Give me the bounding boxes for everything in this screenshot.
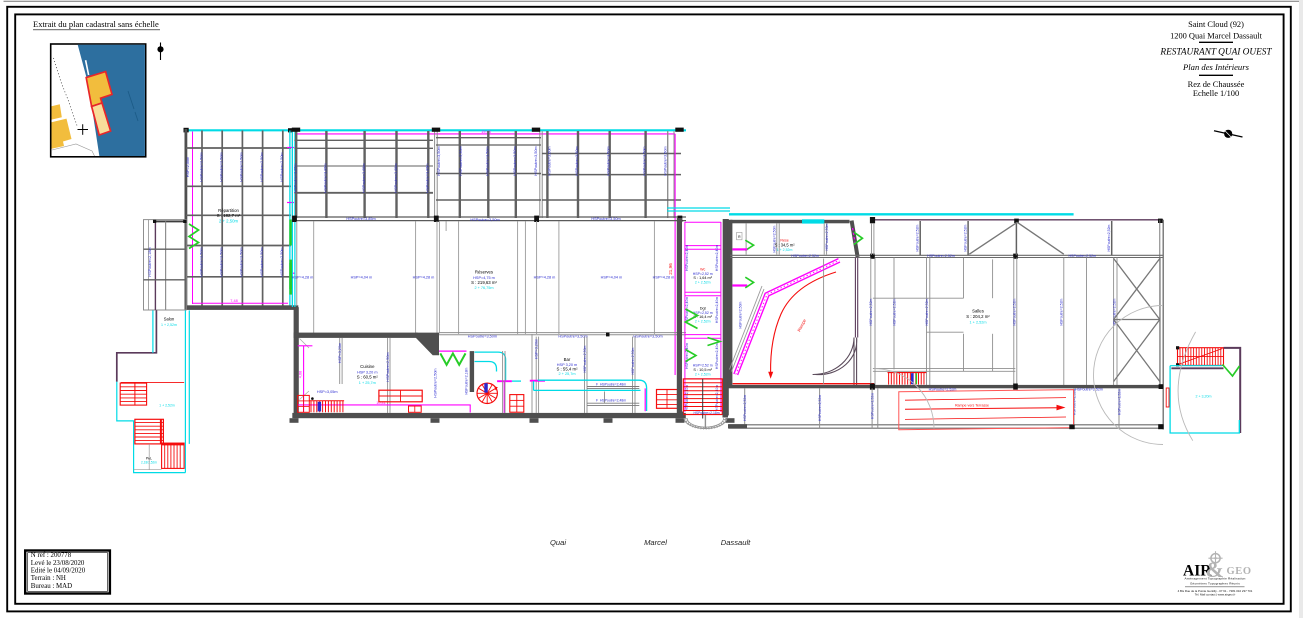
svg-text:HSPoutre=2,50m: HSPoutre=2,50m [386, 352, 390, 381]
svg-text:HSPoutre=2,52m: HSPoutre=2,52m [1107, 224, 1111, 251]
svg-text:HSPoutre=2,40m: HSPoutre=2,40m [685, 245, 689, 271]
svg-text:Aménagement Topographie Réalis: Aménagement Topographie Réalisation [1184, 577, 1245, 581]
svg-text:HSPoutre=2,40m: HSPoutre=2,40m [715, 245, 719, 271]
svg-text:Rampe vers Terrasse: Rampe vers Terrasse [955, 404, 989, 408]
svg-text:Bar: Bar [564, 357, 571, 362]
svg-text:HSPoutre=3,50m: HSPoutre=3,50m [437, 146, 441, 175]
svg-text:HSP=4,04 m: HSP=4,04 m [351, 276, 373, 280]
svg-text:HSPoutre=2,18m: HSPoutre=2,18m [148, 247, 152, 276]
svg-text:HSPoutre=2,52m: HSPoutre=2,52m [1075, 388, 1103, 392]
svg-text:Tel. Mail contact | www.airgeo: Tel. Mail contact | www.airgeo.fr [1195, 593, 1236, 597]
svg-text:Levé le 23/08/2020: Levé le 23/08/2020 [31, 560, 85, 567]
svg-text:HSPoutre=2,52m: HSPoutre=2,52m [925, 298, 929, 325]
svg-text:Dgt: Dgt [700, 306, 707, 310]
svg-text:HSPoutre=3,50m: HSPoutre=3,50m [575, 146, 579, 175]
svg-text:HSP=4,28 m: HSP=4,28 m [653, 276, 675, 280]
svg-text:Géomètres Topographes Réunis: Géomètres Topographes Réunis [1190, 581, 1240, 585]
svg-text:HSPoutre=2,50m: HSPoutre=2,50m [825, 223, 829, 250]
svg-text:HSPoutre=3,50m: HSPoutre=3,50m [607, 146, 611, 175]
svg-text:GEO: GEO [1227, 566, 1252, 577]
svg-text:HSPoutre=3,50m: HSPoutre=3,50m [513, 146, 517, 175]
svg-text:HSPoutre=2,52m: HSPoutre=2,52m [871, 393, 875, 419]
svg-text:HSPoutre=2,50m: HSPoutre=2,50m [220, 247, 224, 276]
svg-text:HSPoutre=2,50m: HSPoutre=2,50m [199, 152, 203, 181]
svg-text:Wc: Wc [700, 267, 705, 271]
svg-text:HSP=4,28 m: HSP=4,28 m [292, 276, 314, 280]
svg-text:Edité le 04/09/2020: Edité le 04/09/2020 [31, 568, 86, 575]
svg-text:HSPoutre=2,50m: HSPoutre=2,50m [220, 152, 224, 181]
svg-text:4,68: 4,68 [298, 371, 302, 378]
svg-text:HSP=3,05m: HSP=3,05m [317, 390, 338, 394]
svg-text:HSPoutre=3,85m: HSPoutre=3,85m [324, 163, 328, 192]
svg-text:HSPoutre=3,85m: HSPoutre=3,85m [362, 163, 366, 192]
svg-text:HSP=3,20m: HSP=3,20m [338, 343, 342, 364]
svg-text:Plan des Intérieurs: Plan des Intérieurs [1182, 62, 1250, 72]
svg-text:HSPoutre=3,50m: HSPoutre=3,50m [664, 146, 668, 175]
svg-text:HSPoutre=3,85m: HSPoutre=3,85m [294, 163, 298, 192]
svg-text:Dassault: Dassault [721, 538, 751, 547]
svg-text:HSPoutre=2,50m: HSPoutre=2,50m [199, 247, 203, 276]
svg-text:HSP=2,52 m: HSP=2,52 m [693, 272, 713, 276]
svg-text:HSPoutre=2,50m: HSPoutre=2,50m [434, 368, 438, 397]
svg-text:Echelle 1/100: Echelle 1/100 [1193, 89, 1239, 98]
svg-text:Extrait du plan cadastral sans: Extrait du plan cadastral sans échelle [33, 19, 159, 29]
svg-text:HSP=3,20m: HSP=3,20m [535, 339, 539, 360]
svg-text:2 + 76,75m: 2 + 76,75m [474, 286, 493, 290]
svg-text:HSPoutre=2,52m: HSPoutre=2,52m [1012, 298, 1016, 325]
svg-text:HSP=2,52 m: HSP=2,52 m [693, 364, 713, 368]
svg-text:HSPoutre=2,50m: HSPoutre=2,50m [280, 152, 284, 181]
svg-text:HSP=4,28 m: HSP=4,28 m [534, 276, 556, 280]
svg-text:HSPoutre=3,50m: HSPoutre=3,50m [591, 217, 620, 221]
svg-text:2 + 2,50m: 2 + 2,50m [219, 218, 239, 223]
svg-text:F HSPoutre=2,48m: F HSPoutre=2,48m [596, 382, 626, 386]
svg-text:N ref : 200778: N ref : 200778 [31, 552, 72, 559]
svg-text:S : 34,5 m²: S : 34,5 m² [775, 243, 796, 248]
svg-text:HSPoutre=2,50m: HSPoutre=2,50m [260, 247, 264, 276]
svg-text:HSPoutre=2,52m: HSPoutre=2,52m [743, 395, 747, 421]
svg-text:HSPoutre=3,50m: HSPoutre=3,50m [485, 146, 489, 175]
svg-text:S : 204,2 m²: S : 204,2 m² [966, 314, 990, 319]
svg-text:HSP=2,50m: HSP=2,50m [186, 157, 190, 178]
svg-text:HSPoutre=3,50m: HSPoutre=3,50m [548, 146, 552, 175]
svg-text:HSPoutre=2,50m: HSPoutre=2,50m [583, 345, 587, 372]
svg-text:1 + 2,52m: 1 + 2,52m [161, 323, 177, 327]
svg-text:HSPoutre=3,85m: HSPoutre=3,85m [394, 163, 398, 192]
svg-text:Marcel: Marcel [644, 538, 667, 547]
svg-text:HSPoutre=2,52m: HSPoutre=2,52m [791, 254, 819, 258]
svg-text:1 + 2,52m: 1 + 2,52m [159, 404, 175, 408]
svg-text:S : 219,63 m²: S : 219,63 m² [471, 280, 497, 285]
svg-text:HSPoutre=2,52m: HSPoutre=2,52m [916, 224, 920, 251]
svg-text:1 + 25,7m: 1 + 25,7m [359, 381, 376, 385]
svg-text:HSPoutre=2,40m: HSPoutre=2,40m [685, 385, 689, 411]
svg-text:Terrain : NH: Terrain : NH [31, 575, 66, 582]
svg-text:1200 Quai Marcel Dassault: 1200 Quai Marcel Dassault [1170, 31, 1263, 40]
svg-text:1 + 2,52m: 1 + 2,52m [970, 321, 987, 325]
svg-text:1 + 2,52m: 1 + 2,52m [777, 248, 793, 252]
svg-text:7,48: 7,48 [230, 299, 237, 303]
svg-text:HSPoutre=2,50m: HSPoutre=2,50m [240, 152, 244, 181]
svg-text:HSPoutre=2,50m: HSPoutre=2,50m [631, 347, 635, 374]
svg-text:RESTAURANT QUAI OUEST: RESTAURANT QUAI OUEST [1159, 48, 1272, 58]
svg-text:HSPoutre=3,50m: HSPoutre=3,50m [459, 146, 463, 175]
svg-text:Rez de Chaussée: Rez de Chaussée [1188, 80, 1245, 89]
svg-text:HSP=4,28 m: HSP=4,28 m [413, 276, 435, 280]
svg-text:HSPoutre=3,85m: HSPoutre=3,85m [426, 163, 430, 192]
svg-text:HSPoutre=2,18m: HSPoutre=2,18m [693, 411, 719, 415]
svg-text:HSPoutre=2,40m: HSPoutre=2,40m [715, 297, 719, 323]
svg-text:HSPoutre=2,52m: HSPoutre=2,52m [818, 395, 822, 421]
svg-text:Réserves: Réserves [475, 270, 493, 275]
svg-text:HSPoutre=2,50m: HSPoutre=2,50m [240, 247, 244, 276]
svg-text:Salles: Salles [972, 309, 984, 314]
svg-text:HSP=4,04 m: HSP=4,04 m [601, 276, 623, 280]
svg-text:F HSPoutre=2,48m: F HSPoutre=2,48m [596, 399, 626, 403]
svg-text:HSPoutre=3,50m: HSPoutre=3,50m [470, 218, 499, 222]
svg-text:S : 10,5 m²: S : 10,5 m² [693, 368, 712, 372]
svg-text:HSPoutre=2,40m: HSPoutre=2,40m [715, 385, 719, 411]
svg-text:S : 60,5 m²: S : 60,5 m² [357, 375, 379, 380]
svg-text:HSPoutre=2,52m: HSPoutre=2,52m [1068, 254, 1096, 258]
svg-text:HSPoutre=2,52m: HSPoutre=2,52m [927, 254, 955, 258]
svg-text:HSPoutre=2,50m: HSPoutre=2,50m [739, 301, 743, 328]
svg-text:HSPoutre=3,85m: HSPoutre=3,85m [346, 217, 375, 221]
svg-text:HSPoutre=3,50m: HSPoutre=3,50m [534, 146, 538, 175]
svg-text:2 + 2,52m: 2 + 2,52m [695, 320, 711, 324]
svg-text:HSPoutre=2,52m: HSPoutre=2,52m [892, 298, 896, 325]
svg-text:HSPoutre=3,50m: HSPoutre=3,50m [643, 146, 647, 175]
svg-text:2 + 2,52m: 2 + 2,52m [695, 372, 711, 376]
svg-text:Bureau : MAD: Bureau : MAD [31, 583, 72, 590]
svg-text:HSPoutre=2,50m: HSPoutre=2,50m [260, 152, 264, 181]
svg-text:HSPoutre=2,40m: HSPoutre=2,40m [685, 343, 689, 369]
svg-text:HSPoutre=2,52m: HSPoutre=2,52m [869, 298, 873, 325]
svg-text:21,96: 21,96 [668, 263, 673, 275]
svg-text:HSPoutre=2,52m: HSPoutre=2,52m [964, 224, 968, 251]
svg-text:HSPoutre=2,52m: HSPoutre=2,52m [1059, 298, 1063, 325]
svg-text:HSPoutre=2,50m: HSPoutre=2,50m [280, 247, 284, 276]
svg-text:S : 55,4 m²: S : 55,4 m² [556, 367, 578, 372]
svg-text:2 + 25,7m: 2 + 25,7m [559, 372, 576, 376]
svg-text:HSPoutre=2,40m: HSPoutre=2,40m [715, 343, 719, 369]
svg-text:HSPoutre=2,52m: HSPoutre=2,52m [1118, 389, 1122, 415]
svg-text:Saint Cloud (92): Saint Cloud (92) [1188, 20, 1244, 29]
svg-text:HSPoutre=2,18m: HSPoutre=2,18m [465, 367, 469, 394]
svg-text:Salon: Salon [164, 317, 175, 322]
svg-text:Quai: Quai [550, 538, 566, 547]
svg-text:2 + 3,20m: 2 + 3,20m [1195, 395, 1211, 399]
svg-text:Cuisine: Cuisine [360, 364, 375, 369]
svg-text:2 + 2,52m: 2 + 2,52m [695, 280, 711, 284]
